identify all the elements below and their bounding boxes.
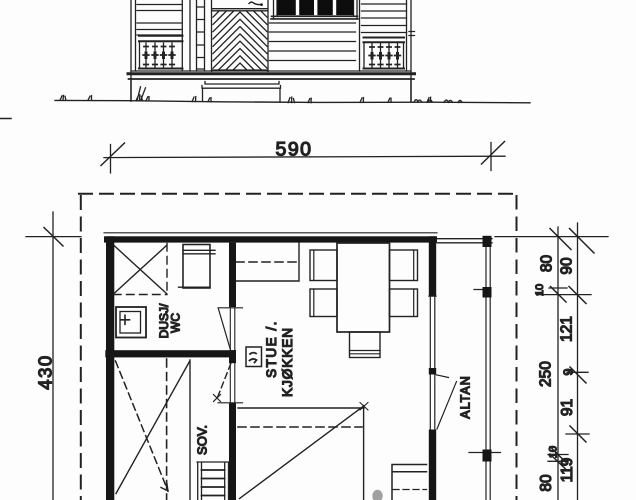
- svg-text:10: 10: [548, 446, 560, 458]
- svg-text:430: 430: [35, 354, 56, 389]
- svg-text:10: 10: [534, 284, 546, 296]
- svg-text:91: 91: [559, 399, 576, 416]
- svg-text:80: 80: [538, 474, 555, 492]
- svg-text:KJØKKEN: KJØKKEN: [280, 327, 295, 397]
- svg-text:STUE /.: STUE /.: [264, 320, 279, 378]
- svg-text:90: 90: [559, 257, 576, 275]
- svg-text:WC: WC: [169, 313, 183, 333]
- svg-text:121: 121: [559, 316, 576, 342]
- svg-text:SOV.: SOV.: [195, 425, 210, 455]
- svg-text:80: 80: [539, 255, 556, 273]
- svg-text:119: 119: [559, 458, 576, 483]
- svg-text:ALTAN: ALTAN: [459, 375, 473, 418]
- svg-text:590: 590: [275, 139, 312, 161]
- svg-text:9: 9: [562, 368, 576, 375]
- svg-text:250: 250: [538, 361, 555, 387]
